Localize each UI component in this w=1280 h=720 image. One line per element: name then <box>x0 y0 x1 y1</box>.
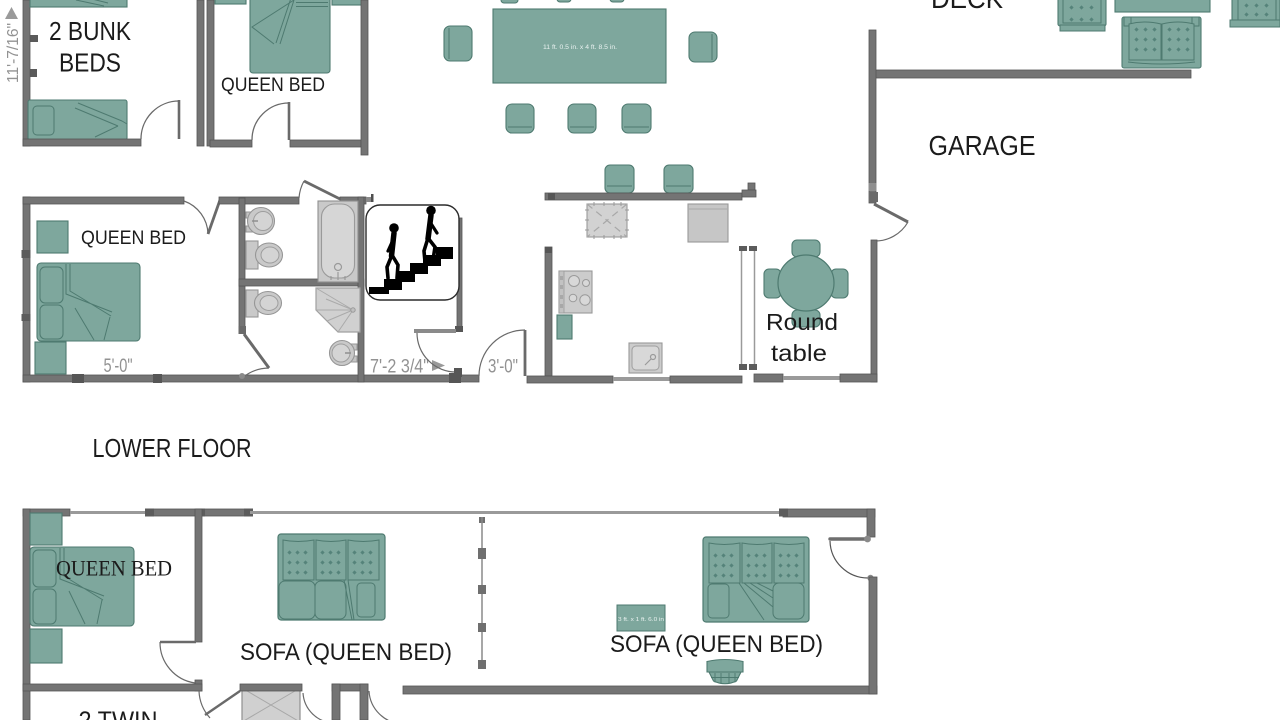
svg-text:11 ft. 0.5 in. x 4 ft. 8.5 in.: 11 ft. 0.5 in. x 4 ft. 8.5 in. <box>543 44 617 51</box>
svg-text:Round: Round <box>766 309 838 335</box>
svg-text:QUEEN BED: QUEEN BED <box>221 74 325 96</box>
svg-text:QUEEN BED: QUEEN BED <box>56 556 172 581</box>
svg-text:SOFA (QUEEN BED): SOFA (QUEEN BED) <box>240 639 452 666</box>
svg-text:GARAGE: GARAGE <box>929 130 1036 161</box>
svg-text:11'-7/16": 11'-7/16" <box>5 23 22 83</box>
svg-text:BEDS: BEDS <box>59 50 121 78</box>
svg-text:3'-0": 3'-0" <box>488 357 518 378</box>
svg-text:3 ft. x 1 ft. 6.0 in: 3 ft. x 1 ft. 6.0 in <box>618 617 664 623</box>
svg-text:QUEEN BED: QUEEN BED <box>81 227 186 249</box>
svg-text:DECK: DECK <box>931 0 1003 14</box>
svg-text:2 BUNK: 2 BUNK <box>49 18 131 46</box>
svg-text:SOFA (QUEEN BED): SOFA (QUEEN BED) <box>610 631 823 658</box>
svg-text:table: table <box>771 340 827 366</box>
svg-text:7'-2 3/4": 7'-2 3/4" <box>370 357 429 378</box>
svg-text:2 TWIN: 2 TWIN <box>79 707 158 720</box>
svg-text:5'-0": 5'-0" <box>104 356 133 377</box>
svg-text:LOWER FLOOR: LOWER FLOOR <box>93 435 252 463</box>
